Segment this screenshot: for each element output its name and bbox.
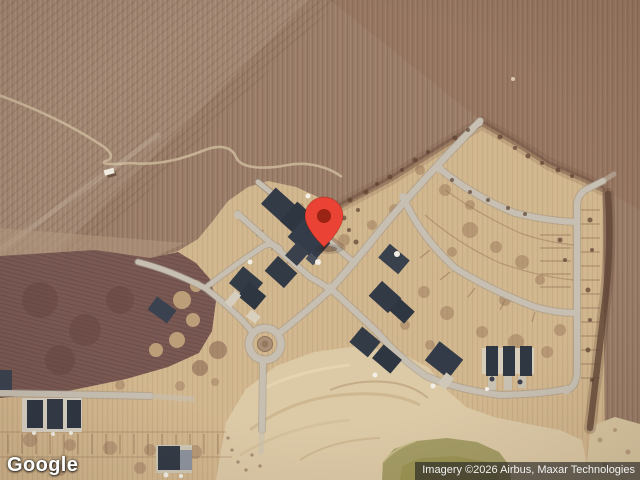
google-logo[interactable]: Google [7,454,78,477]
map-canvas[interactable]: Google Imagery ©2026 Airbus, Maxar Techn… [0,0,640,480]
marker-pin-inner-circle [317,209,331,223]
attribution-text: Imagery ©2026 Airbus, Maxar Technologies [422,464,635,476]
attribution-bar: Imagery ©2026 Airbus, Maxar Technologies [415,462,640,480]
satellite-imagery [0,0,640,480]
